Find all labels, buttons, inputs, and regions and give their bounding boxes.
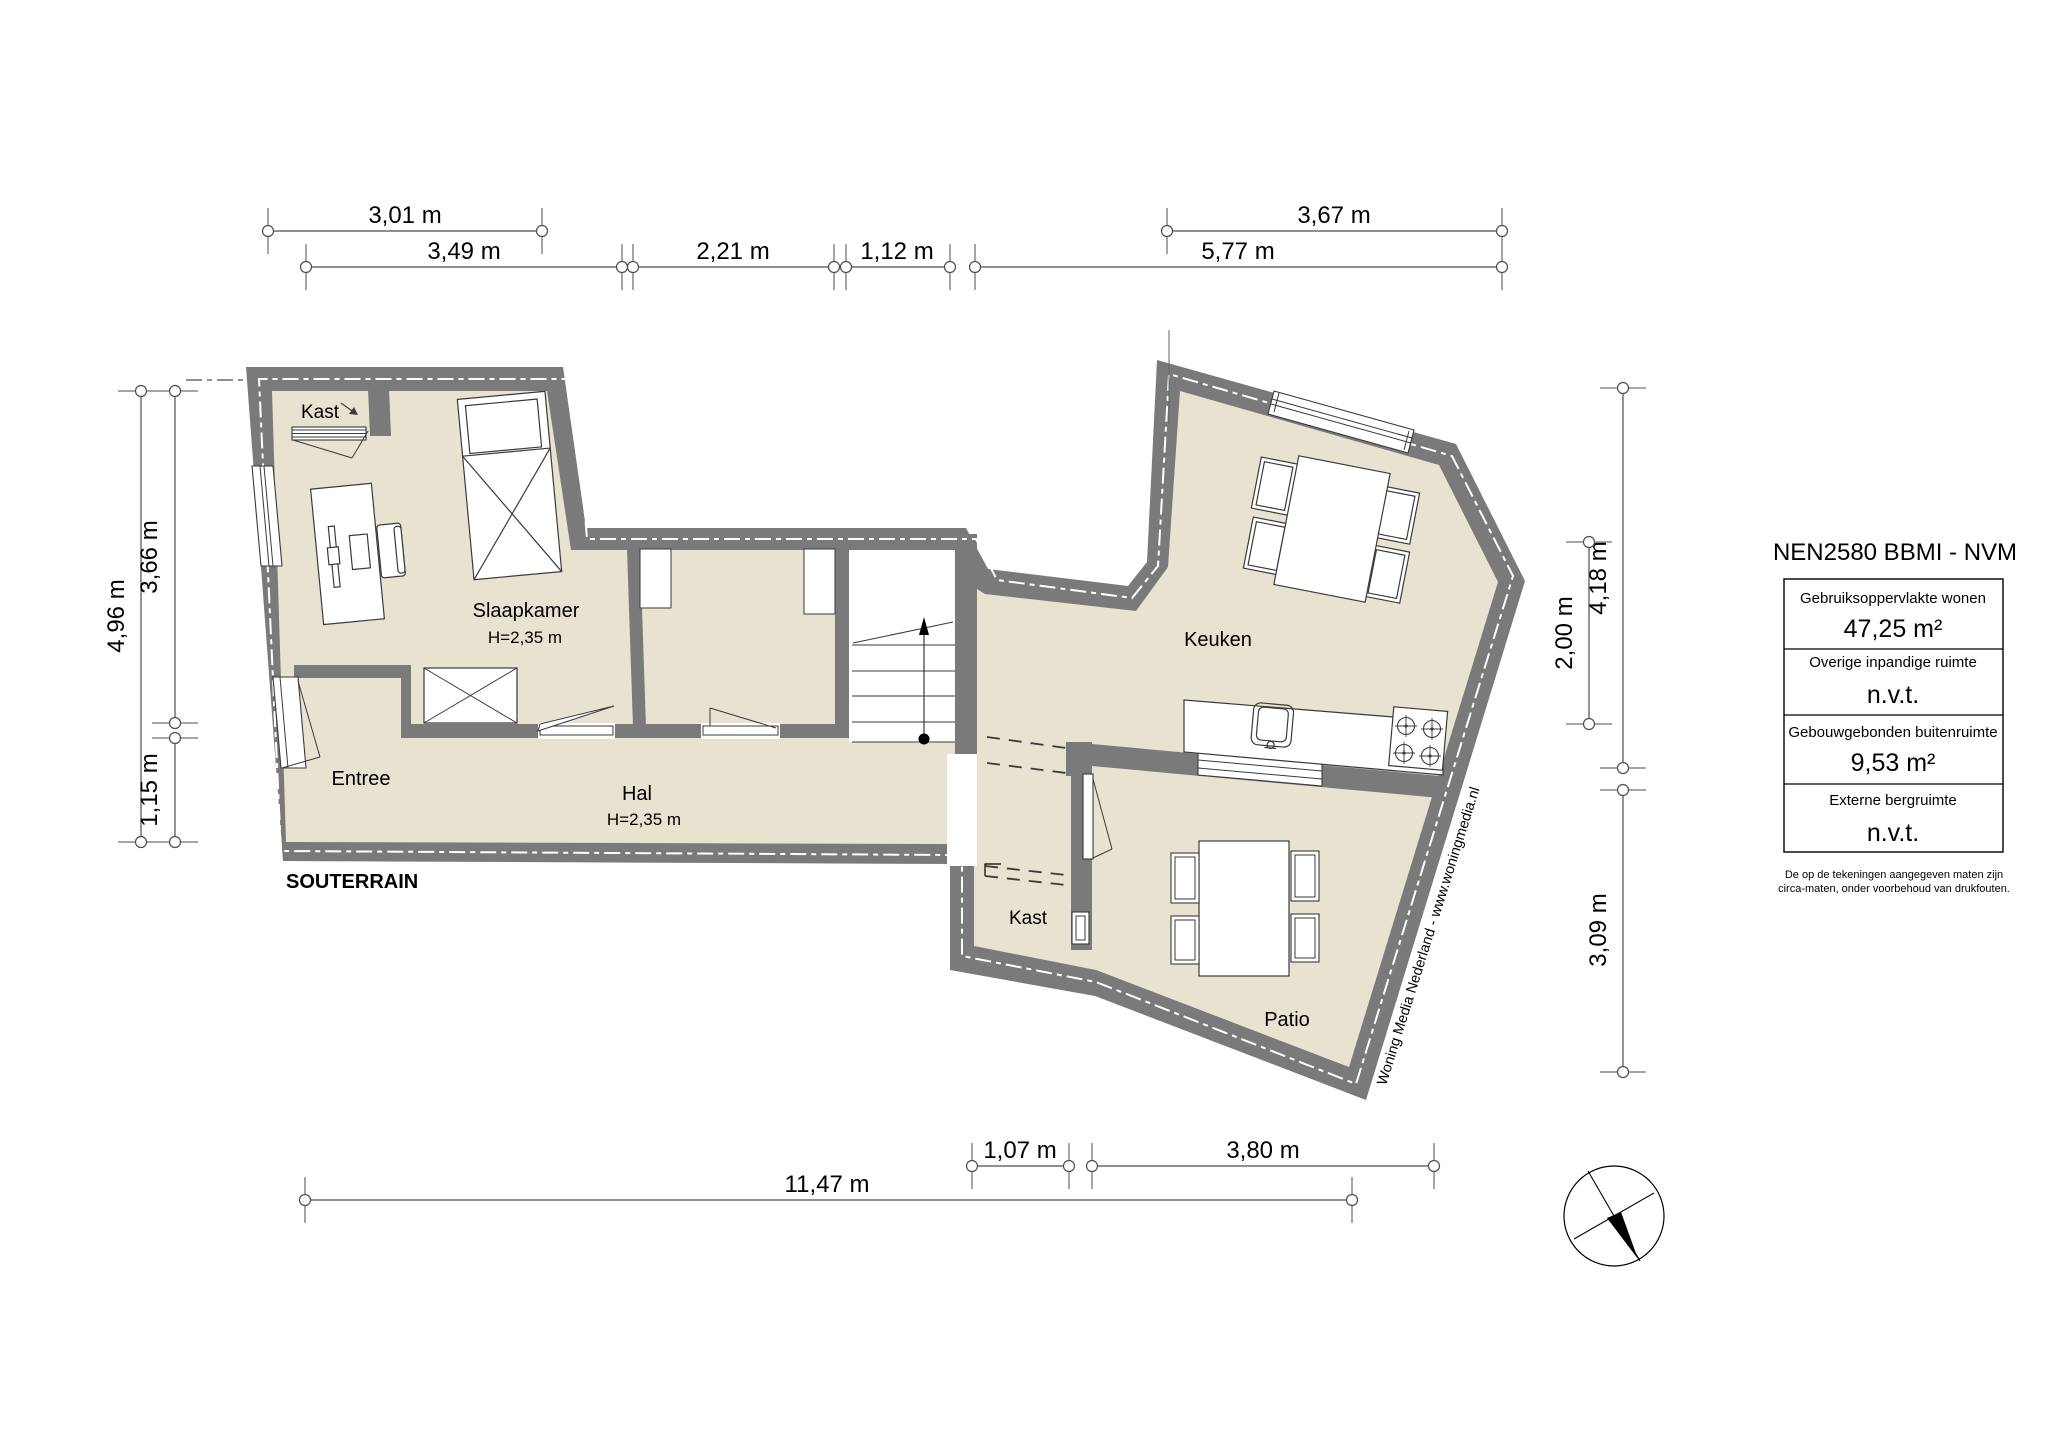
svg-text:9,53 m²: 9,53 m² bbox=[1851, 749, 1936, 777]
svg-text:Slaapkamer: Slaapkamer bbox=[473, 600, 580, 622]
svg-text:Patio: Patio bbox=[1264, 1009, 1310, 1031]
svg-text:3,66 m: 3,66 m bbox=[136, 520, 163, 593]
svg-text:Hal: Hal bbox=[622, 783, 652, 805]
svg-text:3,80 m: 3,80 m bbox=[1226, 1137, 1299, 1164]
svg-text:47,25 m²: 47,25 m² bbox=[1844, 615, 1943, 643]
svg-text:3,67 m: 3,67 m bbox=[1297, 202, 1370, 229]
svg-text:Gebruiksoppervlakte wonen: Gebruiksoppervlakte wonen bbox=[1800, 590, 1986, 607]
svg-text:Kast: Kast bbox=[1009, 908, 1048, 929]
svg-text:circa-maten, onder voorbehoud: circa-maten, onder voorbehoud van drukfo… bbox=[1778, 883, 2010, 895]
svg-text:Overige inpandige ruimte: Overige inpandige ruimte bbox=[1809, 654, 1977, 671]
svg-text:De op de tekeningen aangegeven: De op de tekeningen aangegeven maten zij… bbox=[1785, 869, 2003, 881]
svg-text:1,15 m: 1,15 m bbox=[136, 753, 163, 826]
svg-text:3,49 m: 3,49 m bbox=[427, 238, 500, 265]
svg-text:2,21 m: 2,21 m bbox=[696, 238, 769, 265]
svg-text:2,00 m: 2,00 m bbox=[1551, 596, 1578, 669]
svg-text:Externe bergruimte: Externe bergruimte bbox=[1829, 792, 1957, 809]
svg-text:Entree: Entree bbox=[332, 768, 391, 790]
svg-text:3,09 m: 3,09 m bbox=[1585, 893, 1612, 966]
svg-text:11,47 m: 11,47 m bbox=[785, 1171, 870, 1198]
svg-text:5,77 m: 5,77 m bbox=[1201, 238, 1274, 265]
svg-text:3,01 m: 3,01 m bbox=[368, 202, 441, 229]
svg-text:n.v.t.: n.v.t. bbox=[1867, 819, 1919, 847]
svg-text:1,07 m: 1,07 m bbox=[983, 1137, 1056, 1164]
svg-text:SOUTERRAIN: SOUTERRAIN bbox=[286, 871, 418, 893]
svg-text:NEN2580 BBMI - NVM: NEN2580 BBMI - NVM bbox=[1773, 539, 2017, 566]
svg-text:n.v.t.: n.v.t. bbox=[1867, 681, 1919, 709]
svg-text:Gebouwgebonden buitenruimte: Gebouwgebonden buitenruimte bbox=[1788, 724, 1997, 741]
svg-text:Keuken: Keuken bbox=[1184, 629, 1252, 651]
svg-text:4,96 m: 4,96 m bbox=[103, 579, 130, 652]
svg-text:1,12 m: 1,12 m bbox=[860, 238, 933, 265]
svg-text:H=2,35 m: H=2,35 m bbox=[488, 628, 562, 647]
svg-text:Kast: Kast bbox=[301, 402, 340, 423]
svg-text:H=2,35 m: H=2,35 m bbox=[607, 810, 681, 829]
